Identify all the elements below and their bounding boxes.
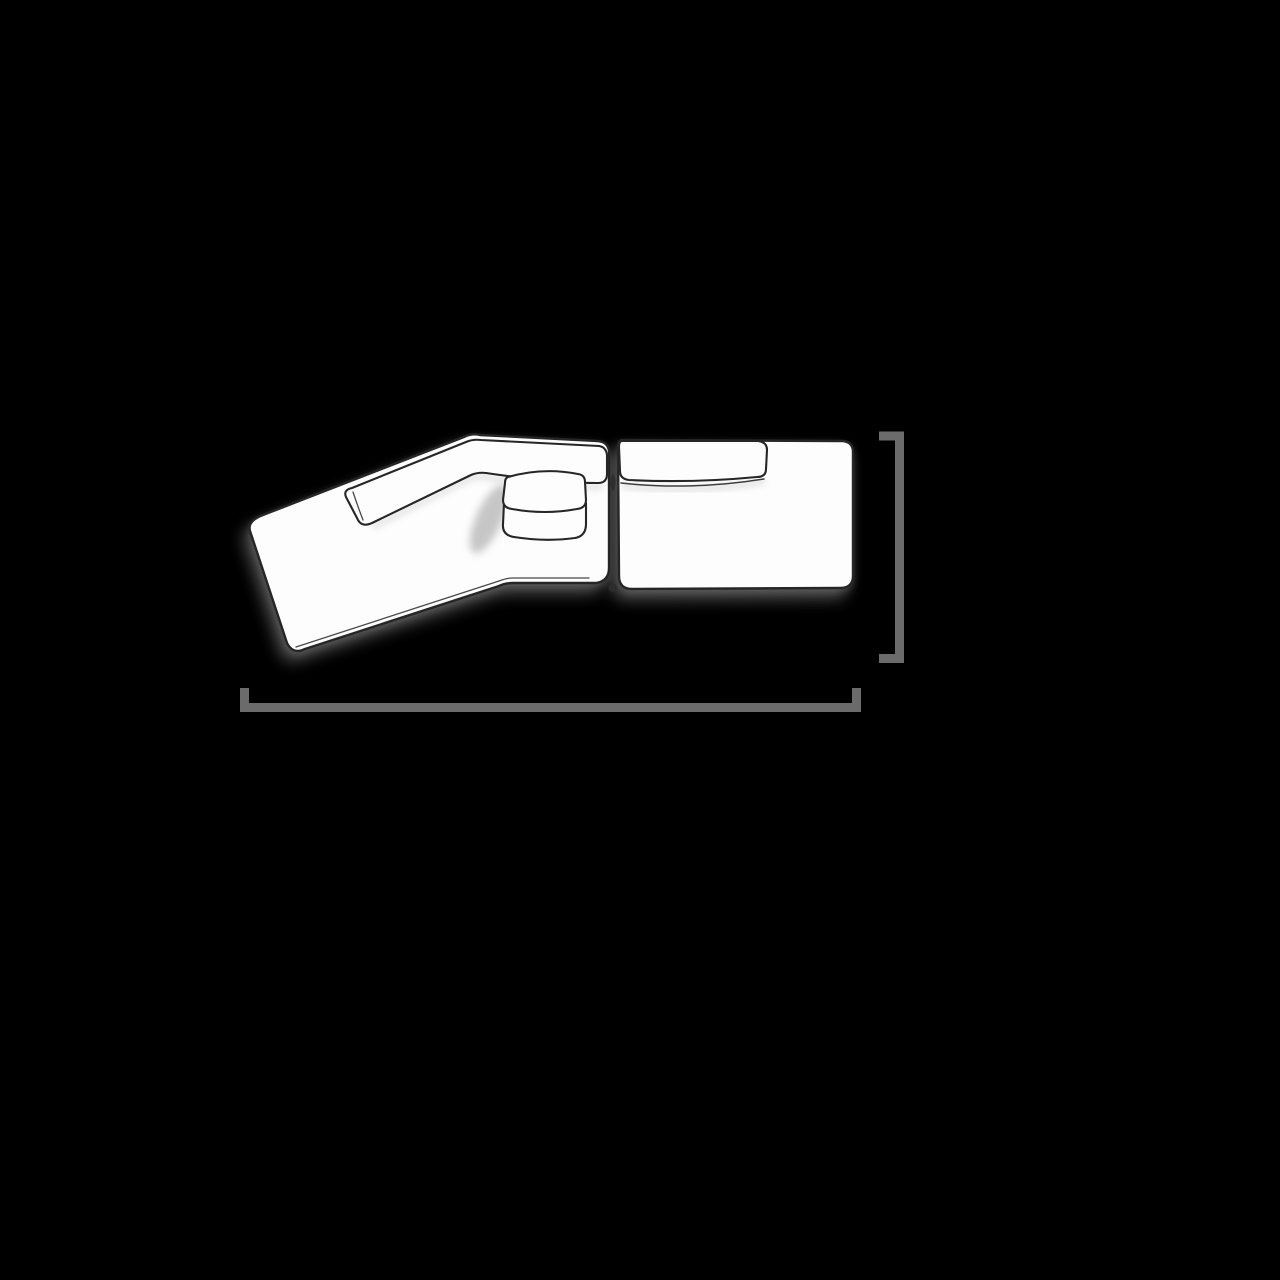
right-backrest-cushion <box>619 441 767 481</box>
sofa-dimension-diagram <box>0 0 1280 1280</box>
chaise-module <box>250 434 609 651</box>
diagram-canvas <box>0 0 1280 1280</box>
lumbar-pillow <box>503 471 586 540</box>
pillow-upper-fold <box>503 471 586 512</box>
junction-pinch-lower <box>609 584 618 592</box>
overall-width-bracket <box>245 688 857 708</box>
overall-depth-bracket <box>879 436 900 659</box>
right-module <box>618 440 853 589</box>
